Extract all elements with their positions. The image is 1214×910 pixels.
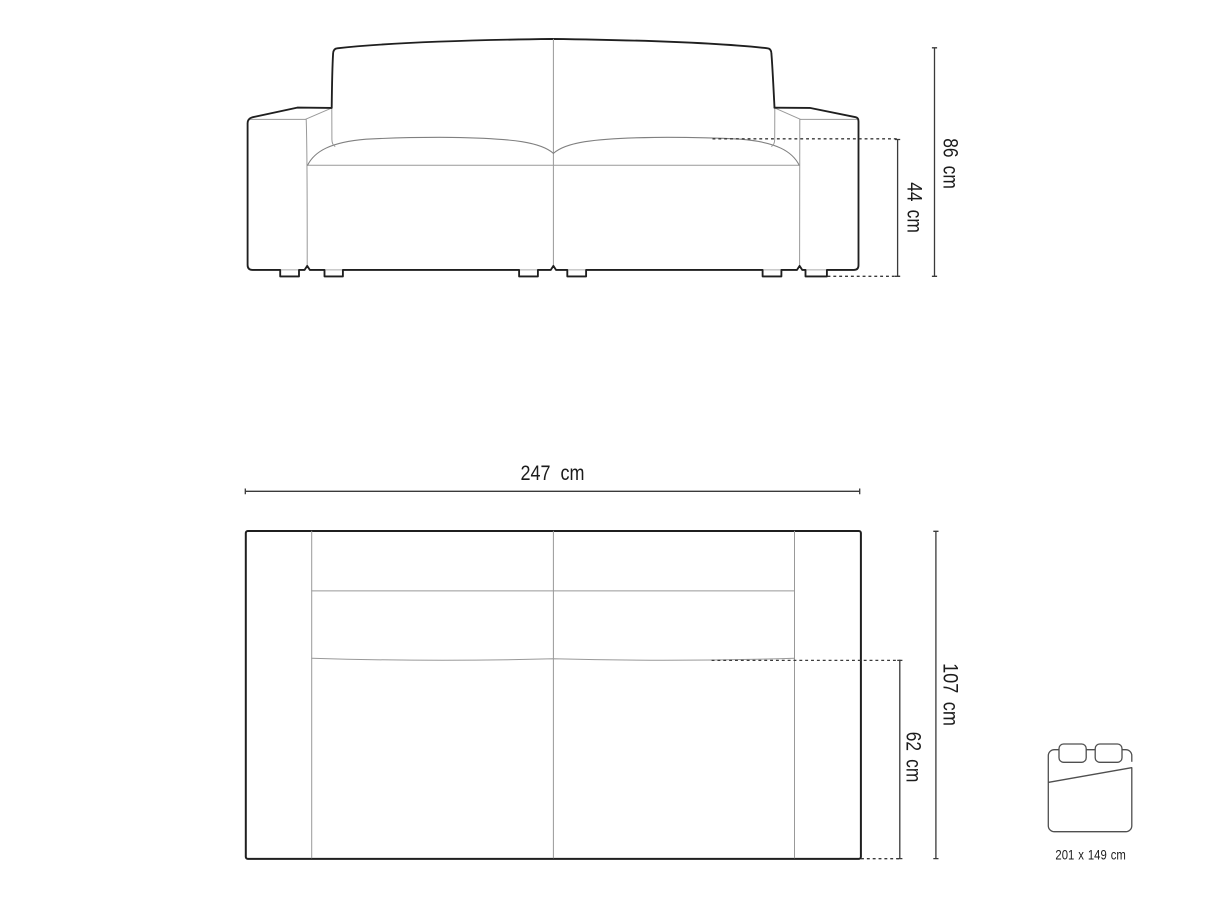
svg-text:62 cm: 62 cm	[901, 732, 925, 783]
svg-text:86 cm: 86 cm	[938, 138, 962, 189]
svg-text:44 cm: 44 cm	[902, 182, 926, 233]
svg-text:107 cm: 107 cm	[938, 663, 962, 726]
svg-text:247 cm: 247 cm	[521, 462, 585, 486]
svg-text:201 x 149 cm: 201 x 149 cm	[1055, 846, 1125, 862]
